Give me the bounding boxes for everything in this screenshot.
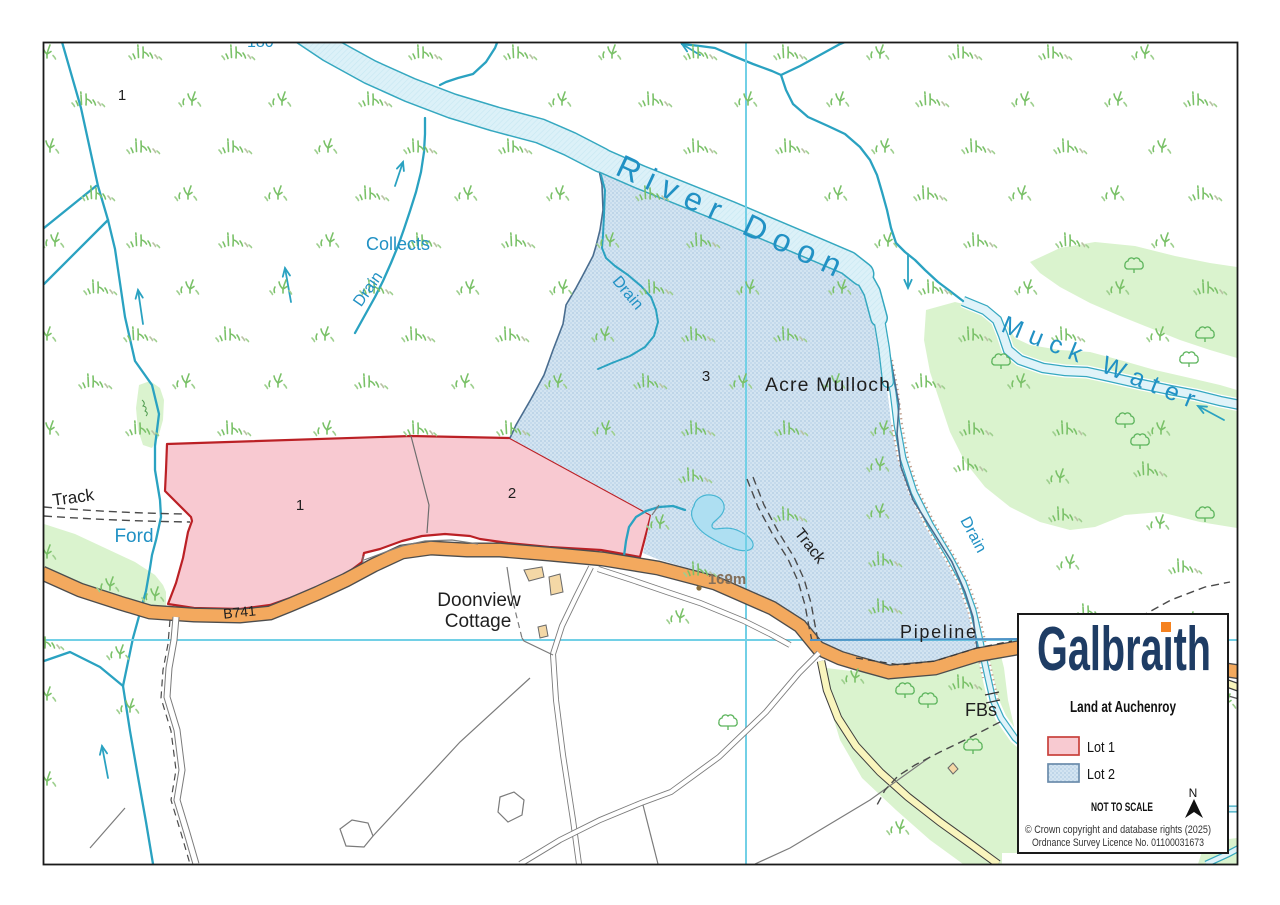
svg-text:2: 2 [508,485,516,502]
svg-text:NOT TO SCALE: NOT TO SCALE [1091,800,1153,814]
svg-text:1: 1 [296,497,304,514]
svg-text:B741: B741 [222,602,256,621]
svg-text:Ordnance Survey Licence No. 01: Ordnance Survey Licence No. 01100031673 [1032,837,1204,849]
svg-text:Collects: Collects [366,234,430,254]
svg-text:Lot 1: Lot 1 [1087,740,1115,756]
svg-text:Land at Auchenroy: Land at Auchenroy [1070,699,1176,716]
svg-text:Acre Mulloch: Acre Mulloch [765,374,890,396]
svg-text:3: 3 [702,368,710,385]
svg-text:169m: 169m [708,571,746,588]
svg-text:Ford: Ford [114,526,153,547]
svg-text:Lot 2: Lot 2 [1087,767,1115,783]
svg-text:1: 1 [118,87,126,104]
svg-text:FBs: FBs [965,700,997,720]
svg-text:Galbraıth: Galbraıth [1037,615,1211,684]
svg-text:© Crown copyright and database: © Crown copyright and database rights (2… [1025,824,1211,836]
svg-text:Doonview: Doonview [437,590,521,611]
svg-text:N: N [1189,786,1198,800]
svg-text:Cottage: Cottage [445,611,512,632]
